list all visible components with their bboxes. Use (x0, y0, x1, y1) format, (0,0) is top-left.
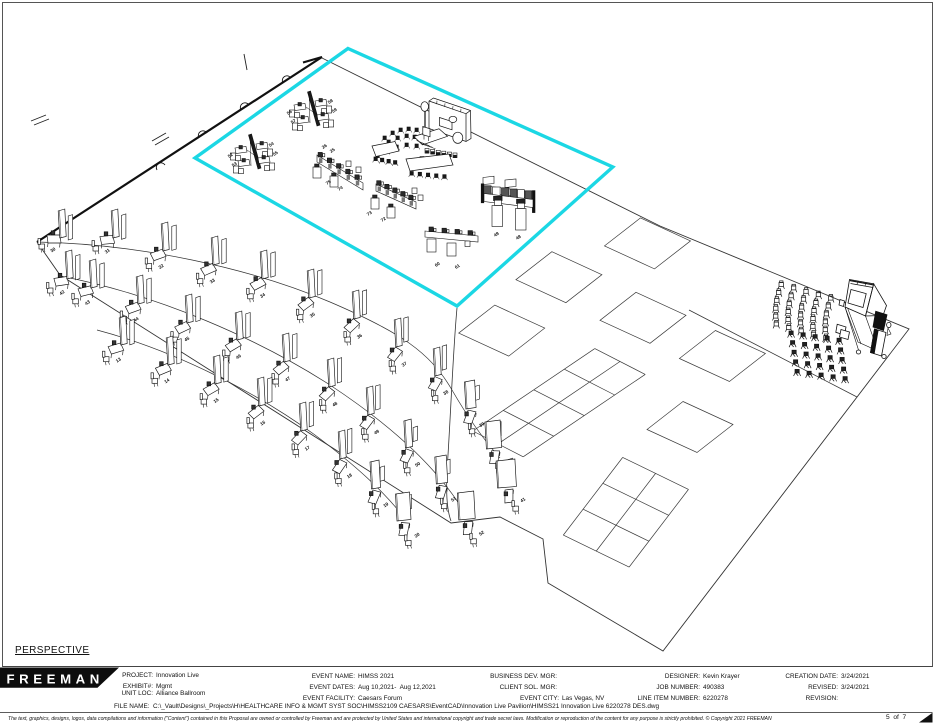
svg-text:61: 61 (454, 263, 461, 270)
svg-text:20: 20 (414, 531, 421, 538)
svg-text:36: 36 (356, 333, 363, 340)
svg-text:50: 50 (414, 461, 421, 468)
svg-text:31: 31 (104, 247, 111, 254)
svg-text:72: 72 (380, 216, 387, 223)
svg-text:49: 49 (493, 231, 500, 238)
svg-text:60: 60 (434, 261, 441, 268)
svg-text:15: 15 (213, 397, 220, 404)
svg-text:17: 17 (304, 445, 311, 452)
svg-text:16: 16 (259, 419, 266, 426)
svg-text:45: 45 (183, 335, 190, 342)
svg-text:33: 33 (209, 277, 216, 284)
svg-text:47: 47 (284, 375, 291, 382)
svg-text:51: 51 (450, 495, 457, 502)
svg-text:26: 26 (321, 143, 328, 150)
svg-text:34: 34 (259, 292, 266, 299)
svg-text:59: 59 (331, 107, 338, 114)
svg-text:46: 46 (235, 353, 242, 360)
svg-text:48: 48 (515, 234, 522, 241)
svg-text:58: 58 (327, 98, 334, 105)
svg-text:13: 13 (115, 356, 122, 363)
svg-text:35: 35 (309, 311, 316, 318)
svg-text:25: 25 (329, 147, 336, 154)
svg-text:48: 48 (331, 401, 338, 408)
svg-text:52: 52 (478, 529, 485, 536)
svg-text:54: 54 (268, 141, 275, 148)
svg-text:30: 30 (49, 246, 56, 253)
svg-text:38: 38 (442, 389, 449, 396)
svg-text:18: 18 (346, 472, 353, 479)
svg-text:19: 19 (382, 501, 389, 508)
svg-text:73: 73 (366, 210, 373, 217)
svg-text:37: 37 (401, 360, 408, 367)
svg-text:39: 39 (478, 421, 485, 428)
svg-text:14: 14 (163, 377, 170, 384)
svg-text:55: 55 (272, 150, 279, 157)
svg-text:41: 41 (519, 496, 526, 503)
svg-text:32: 32 (158, 263, 165, 270)
svg-text:42: 42 (58, 289, 65, 296)
svg-text:FREEMAN: FREEMAN (7, 672, 104, 687)
svg-text:49: 49 (373, 428, 380, 435)
svg-text:43: 43 (84, 299, 91, 306)
